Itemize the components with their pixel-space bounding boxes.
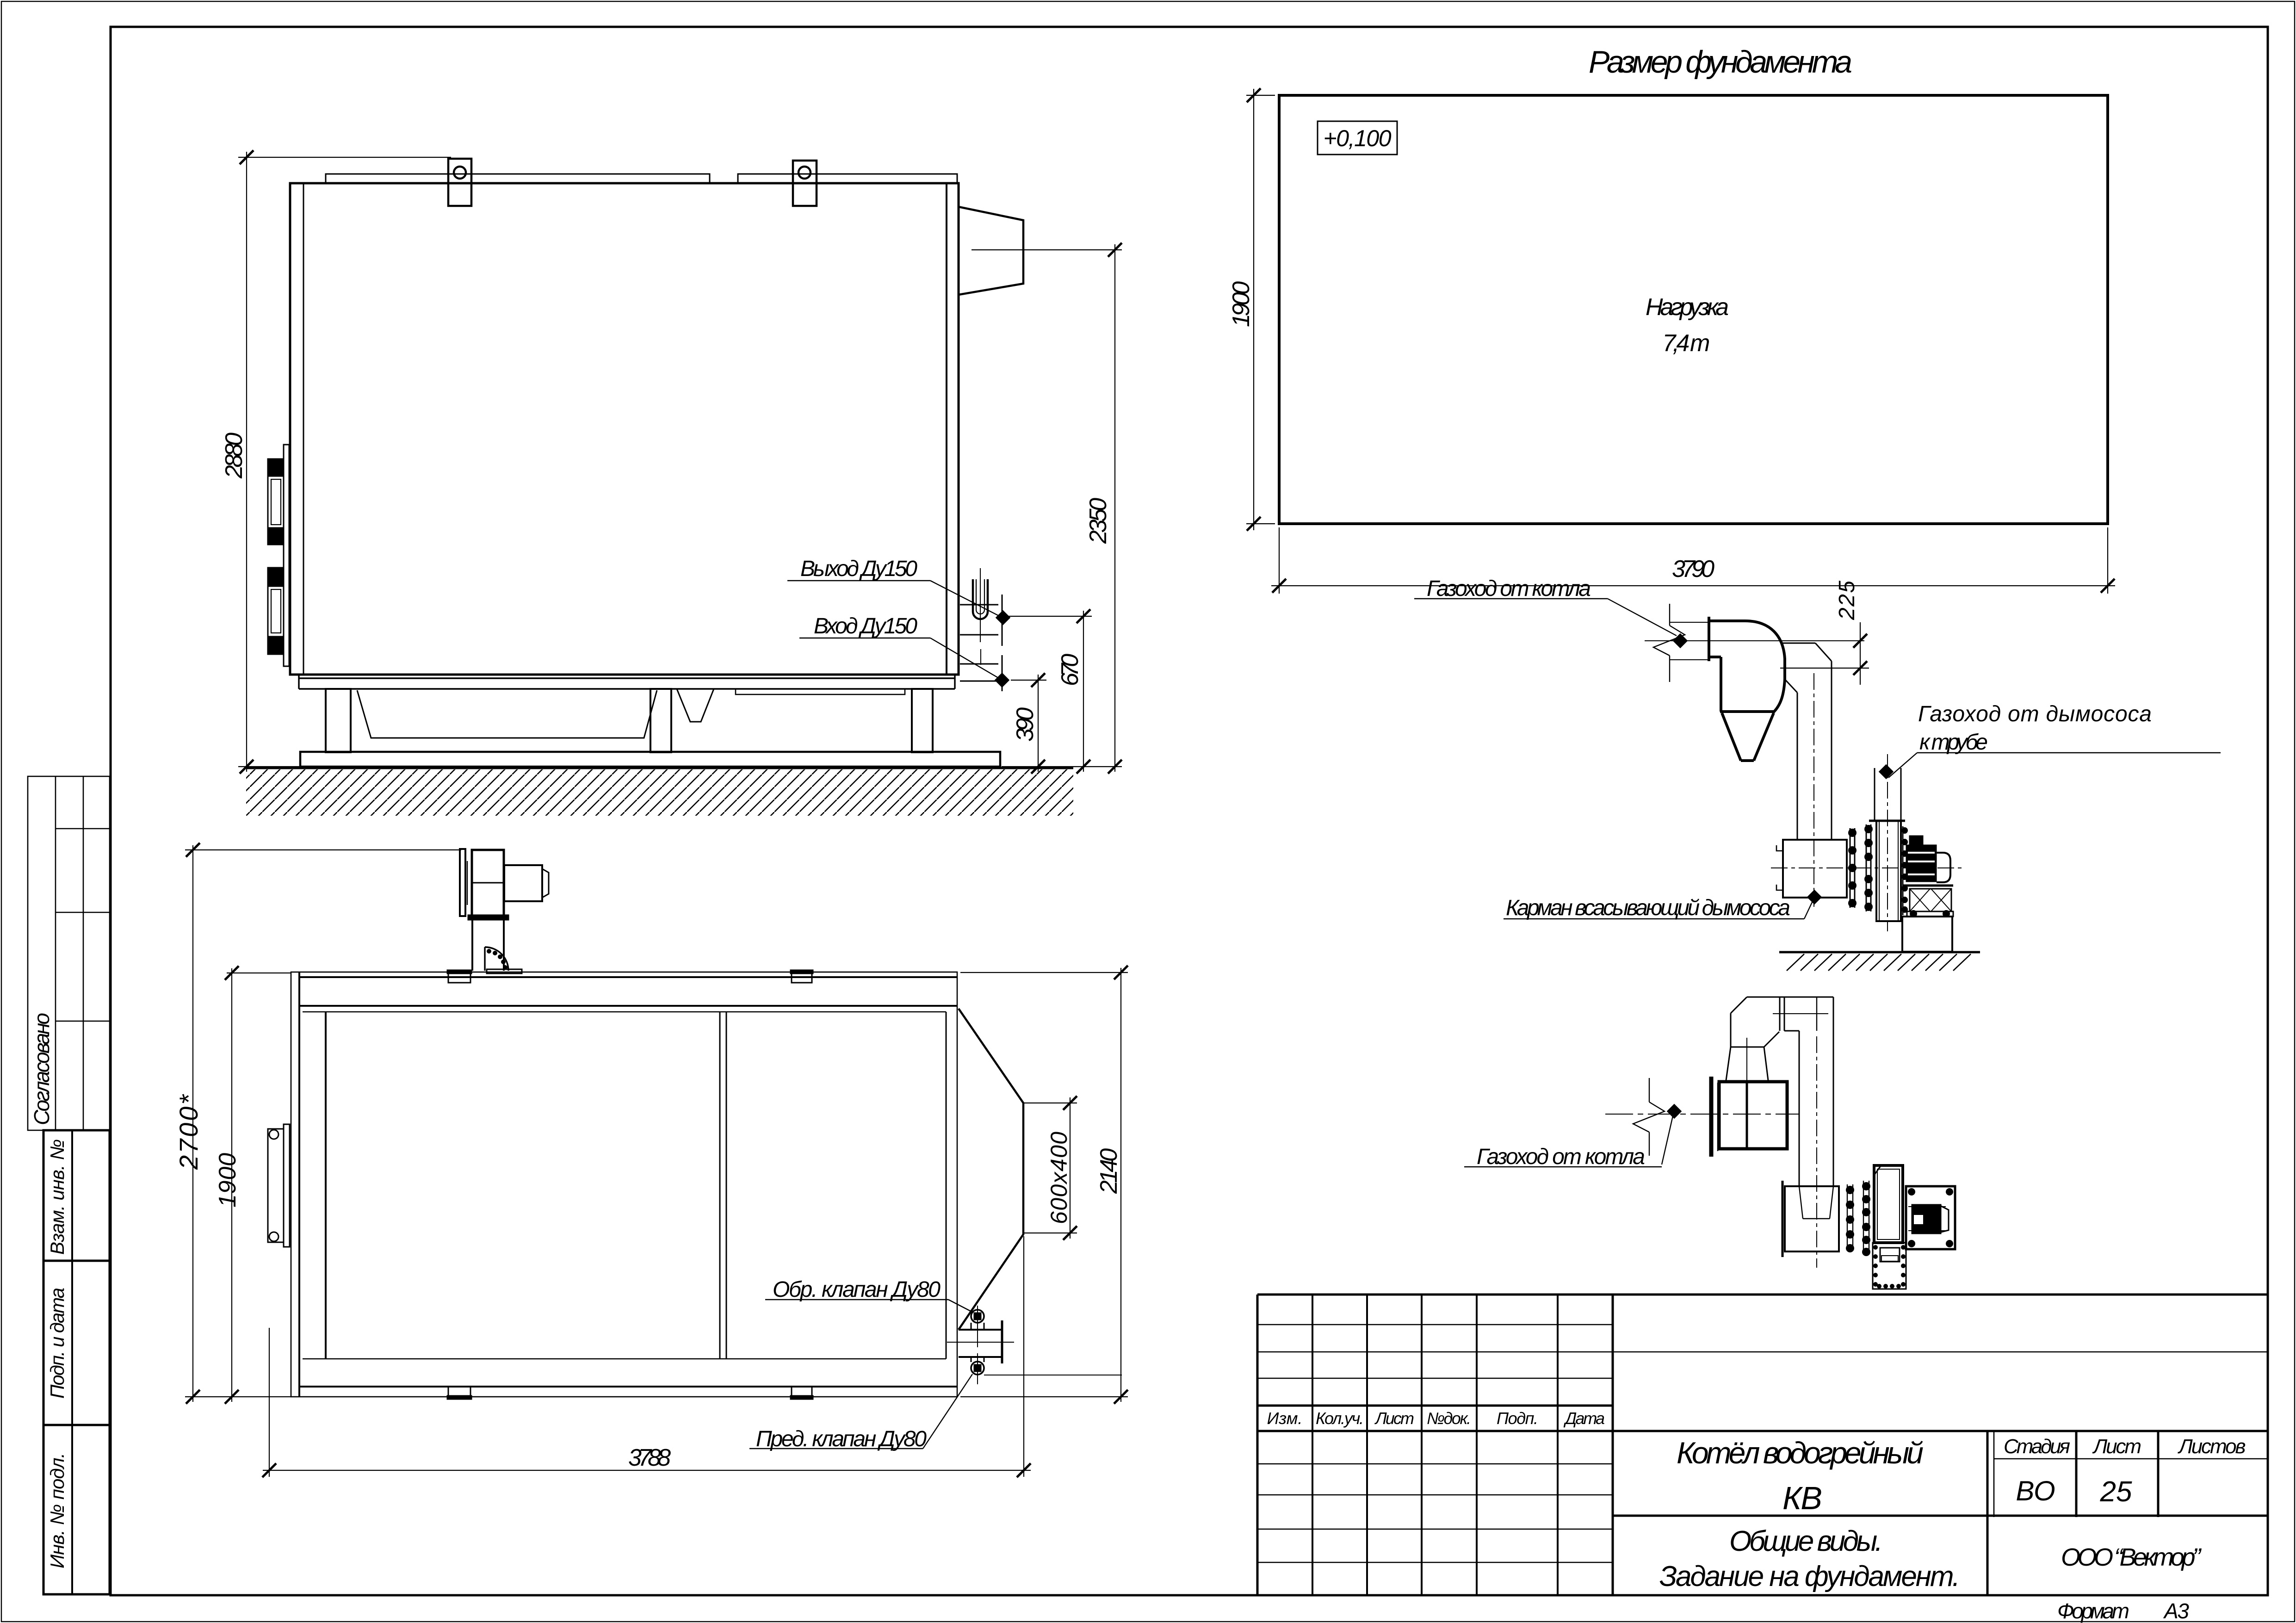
svg-text:Взам. инв. №: Взам. инв. № bbox=[46, 1139, 68, 1255]
svg-text:25: 25 bbox=[2100, 1476, 2132, 1508]
svg-text:600х400: 600х400 bbox=[1046, 1132, 1072, 1224]
svg-text:7,4 т: 7,4 т bbox=[1663, 330, 1710, 357]
svg-text:2880: 2880 bbox=[221, 433, 248, 479]
svg-text:Лист: Лист bbox=[1374, 1409, 1414, 1428]
svg-text:Задание на фундамент.: Задание на фундамент. bbox=[1659, 1561, 1960, 1592]
svg-text:225: 225 bbox=[1835, 581, 1859, 620]
svg-text:Котёл водогрейный: Котёл водогрейный bbox=[1677, 1436, 1924, 1470]
svg-text:Подп. и дата: Подп. и дата bbox=[46, 1288, 68, 1399]
svg-text:Размер фундамента: Размер фундамента bbox=[1589, 44, 1852, 80]
svg-text:к трубе: к трубе bbox=[1919, 730, 1988, 755]
svg-text:А3: А3 bbox=[2163, 1599, 2189, 1623]
svg-text:Газоход от котла: Газоход от котла bbox=[1477, 1145, 1645, 1169]
svg-text:Обр. клапан Ду80: Обр. клапан Ду80 bbox=[773, 1277, 941, 1302]
svg-text:Вход Ду150: Вход Ду150 bbox=[814, 614, 917, 638]
svg-text:3788: 3788 bbox=[628, 1444, 671, 1471]
svg-text:Подп.: Подп. bbox=[1497, 1409, 1538, 1428]
svg-text:1900: 1900 bbox=[1228, 281, 1255, 327]
svg-text:Стадия: Стадия bbox=[2004, 1435, 2070, 1458]
svg-text:Выход Ду150: Выход Ду150 bbox=[800, 557, 917, 581]
svg-text:Нагрузка: Нагрузка bbox=[1646, 294, 1729, 321]
svg-text:Кол.уч.: Кол.уч. bbox=[1316, 1409, 1364, 1428]
svg-text:Пред. клапан Ду80: Пред. клапан Ду80 bbox=[756, 1427, 927, 1451]
svg-text:Согласовано: Согласовано bbox=[30, 1013, 54, 1125]
svg-text:670: 670 bbox=[1057, 654, 1083, 686]
svg-text:Карман всасывающий дымососа: Карман всасывающий дымососа bbox=[1506, 896, 1790, 920]
svg-text:Газоход от котла: Газоход от котла bbox=[1427, 576, 1591, 601]
svg-text:2350: 2350 bbox=[1085, 498, 1112, 544]
svg-text:+0,100: +0,100 bbox=[1324, 125, 1392, 151]
svg-text:КВ: КВ bbox=[1782, 1480, 1822, 1516]
svg-text:Лист: Лист bbox=[2092, 1435, 2141, 1458]
svg-text:Дата: Дата bbox=[1563, 1409, 1605, 1428]
svg-text:Общие виды.: Общие виды. bbox=[1729, 1525, 1883, 1557]
svg-text:2700*: 2700* bbox=[174, 1094, 203, 1170]
svg-text:Формат: Формат bbox=[2057, 1599, 2129, 1623]
svg-text:1900: 1900 bbox=[214, 1153, 241, 1208]
svg-text:ВО: ВО bbox=[2016, 1475, 2055, 1506]
svg-text:Газоход от дымососа: Газоход от дымососа bbox=[1918, 702, 2152, 726]
svg-text:2140: 2140 bbox=[1095, 1148, 1122, 1194]
svg-text:№док.: №док. bbox=[1427, 1409, 1471, 1428]
svg-text:Инв. № подл.: Инв. № подл. bbox=[46, 1453, 68, 1568]
svg-text:Изм.: Изм. bbox=[1267, 1409, 1303, 1428]
svg-text:3790: 3790 bbox=[1672, 556, 1714, 582]
svg-text:ООО “Вектор”: ООО “Вектор” bbox=[2061, 1543, 2202, 1571]
svg-text:390: 390 bbox=[1012, 707, 1039, 742]
svg-text:Листов: Листов bbox=[2178, 1435, 2246, 1458]
